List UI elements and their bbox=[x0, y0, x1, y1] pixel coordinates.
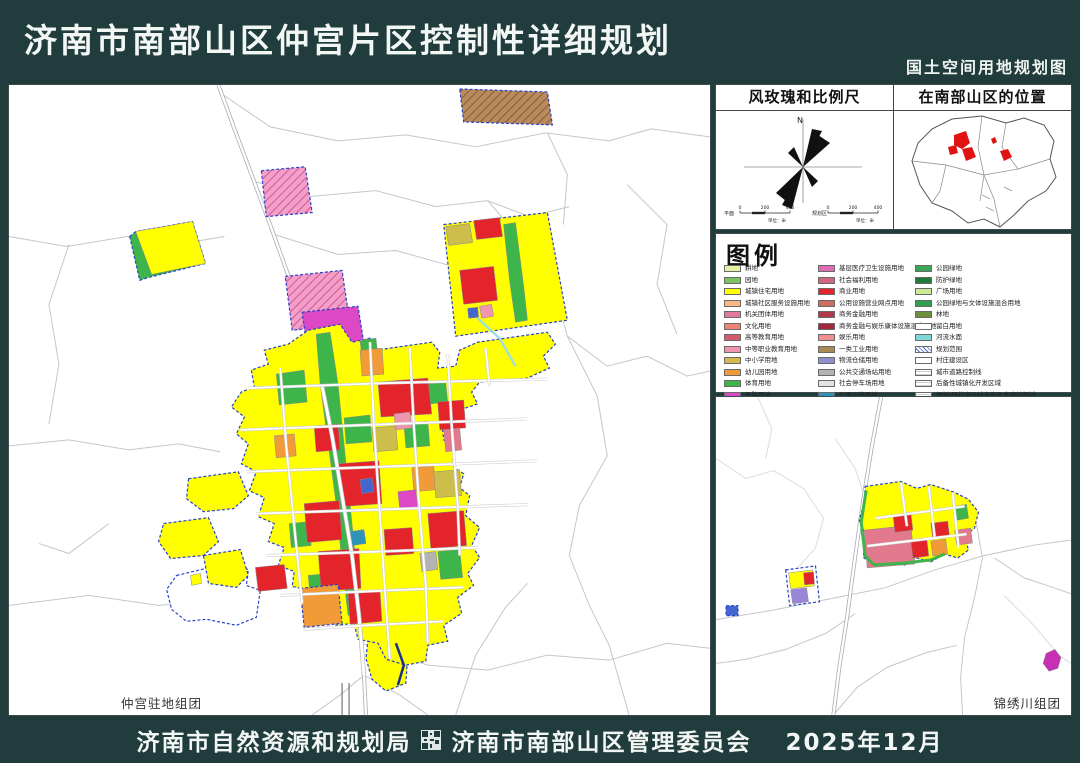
location-title: 在南部山区的位置 bbox=[894, 85, 1071, 111]
svg-text:0: 0 bbox=[739, 205, 742, 211]
legend-label: 城镇社区服务设施用地 bbox=[745, 299, 810, 308]
legend-swatch bbox=[724, 277, 741, 284]
svg-text:200: 200 bbox=[761, 205, 770, 211]
legend-label: 体育用地 bbox=[745, 379, 771, 388]
legend-swatch bbox=[724, 265, 741, 272]
legend-label: 商务金融用地 bbox=[839, 310, 878, 319]
legend-item: 城镇住宅用地 bbox=[724, 287, 784, 296]
footer-date: 2025年12月 bbox=[785, 723, 943, 757]
footer-agency-left: 济南市自然资源和规划局 bbox=[136, 723, 411, 757]
legend-swatch bbox=[724, 311, 741, 318]
legend-swatch bbox=[915, 311, 932, 318]
north-label: N bbox=[797, 116, 803, 125]
info-box: 风玫瑰和比例尺 N 平面0200400单位：米规划区0200400单位：米 在南… bbox=[715, 84, 1072, 230]
legend-swatch bbox=[818, 334, 835, 341]
legend-swatch bbox=[818, 288, 835, 295]
legend-swatch bbox=[915, 334, 932, 341]
legend-label: 基层医疗卫生设施用地 bbox=[839, 264, 904, 273]
sub-map-svg bbox=[716, 397, 1071, 715]
legend-label: 幼儿园用地 bbox=[745, 368, 778, 377]
legend-item: 商务金融用地 bbox=[818, 310, 878, 319]
legend-label: 文化用地 bbox=[745, 322, 771, 331]
legend-swatch bbox=[915, 323, 932, 330]
legend-swatch bbox=[915, 380, 932, 387]
legend-item: 社会福利用地 bbox=[818, 276, 878, 285]
legend-item: 防护绿地 bbox=[915, 276, 962, 285]
legend-swatch bbox=[818, 369, 835, 376]
legend-label: 河流水面 bbox=[936, 333, 962, 342]
legend-item: 耕地 bbox=[724, 264, 758, 273]
legend-label: 耕地 bbox=[745, 264, 758, 273]
legend-label: 中等职业教育用地 bbox=[745, 345, 797, 354]
legend-swatch bbox=[724, 357, 741, 364]
legend-item: 公用设施营业网点用地 bbox=[818, 299, 904, 308]
main-map-label: 仲宫驻地组团 bbox=[119, 693, 204, 712]
legend-item: 基层医疗卫生设施用地 bbox=[818, 264, 904, 273]
legend-item: 规划范围 bbox=[915, 345, 962, 354]
main-map-svg bbox=[9, 85, 710, 715]
legend-label: 广场用地 bbox=[936, 287, 962, 296]
legend-label: 城镇住宅用地 bbox=[745, 287, 784, 296]
footer-agency-right: 济南市南部山区管理委员会 bbox=[451, 723, 751, 757]
legend-item: 留白用地 bbox=[915, 322, 962, 331]
legend-label: 园地 bbox=[745, 276, 758, 285]
page-title: 济南市南部山区仲宫片区控制性详细规划 bbox=[24, 14, 672, 62]
legend-swatch bbox=[724, 323, 741, 330]
legend-item: 广场用地 bbox=[915, 287, 962, 296]
legend-swatch bbox=[818, 323, 835, 330]
legend-swatch bbox=[915, 369, 932, 376]
legend-item: 物流仓储用地 bbox=[818, 356, 878, 365]
legend-label: 公园绿地与文体设施混合用地 bbox=[936, 299, 1021, 308]
legend-label: 社会福利用地 bbox=[839, 276, 878, 285]
legend-item: 商业用地 bbox=[818, 287, 865, 296]
svg-text:单位：米: 单位：米 bbox=[856, 217, 874, 224]
legend-label: 公园绿地 bbox=[936, 264, 962, 273]
legend-label: 商业用地 bbox=[839, 287, 865, 296]
legend-item: 公共交通场站用地 bbox=[818, 368, 891, 377]
svg-text:平面: 平面 bbox=[724, 211, 734, 217]
legend-item: 城市道路控制线 bbox=[915, 368, 982, 377]
legend-swatch bbox=[724, 380, 741, 387]
legend-swatch bbox=[818, 380, 835, 387]
legend-swatch bbox=[724, 334, 741, 341]
windrose-cell: 风玫瑰和比例尺 N 平面0200400单位：米规划区0200400单位：米 bbox=[716, 85, 893, 229]
legend-label: 机关团体用地 bbox=[745, 310, 784, 319]
legend-swatch bbox=[818, 346, 835, 353]
svg-text:单位：米: 单位：米 bbox=[768, 217, 786, 224]
legend-swatch bbox=[915, 265, 932, 272]
legend-item: 中小学用地 bbox=[724, 356, 778, 365]
legend-swatch bbox=[915, 300, 932, 307]
legend-swatch bbox=[915, 277, 932, 284]
legend-swatch bbox=[724, 288, 741, 295]
legend-label: 社会停车场用地 bbox=[839, 379, 885, 388]
legend-label: 公共交通场站用地 bbox=[839, 368, 891, 377]
legend-swatch bbox=[915, 346, 932, 353]
legend-swatch bbox=[724, 346, 741, 353]
location-body bbox=[894, 111, 1071, 229]
legend-label: 林地 bbox=[936, 310, 949, 319]
svg-text:200: 200 bbox=[849, 205, 858, 211]
planning-map-poster: 济南市南部山区仲宫片区控制性详细规划 国土空间用地规划图 仲宫驻地组团 风玫瑰和… bbox=[0, 0, 1080, 763]
legend-swatch bbox=[915, 288, 932, 295]
legend-panel: 图例 耕地园地城镇住宅用地城镇社区服务设施用地机关团体用地文化用地高等教育用地中… bbox=[715, 233, 1072, 393]
legend-item: 村庄建设区 bbox=[915, 356, 969, 365]
legend-item: 城镇社区服务设施用地 bbox=[724, 299, 810, 308]
sub-map-label: 锦绣川组团 bbox=[991, 693, 1063, 712]
legend-label: 留白用地 bbox=[936, 322, 962, 331]
legend-swatch bbox=[818, 300, 835, 307]
legend-item: 幼儿园用地 bbox=[724, 368, 778, 377]
legend-label: 规划范围 bbox=[936, 345, 962, 354]
official-seal-icon bbox=[421, 730, 441, 750]
legend-item: 后备性城镇化开发区域 bbox=[915, 379, 1001, 388]
header-band: 济南市南部山区仲宫片区控制性详细规划 国土空间用地规划图 bbox=[0, 0, 1080, 82]
legend-item: 园地 bbox=[724, 276, 758, 285]
legend-item: 娱乐用地 bbox=[818, 333, 865, 342]
legend-swatch bbox=[818, 311, 835, 318]
svg-text:规划区: 规划区 bbox=[812, 210, 827, 217]
legend-item: 文化用地 bbox=[724, 322, 771, 331]
main-map-panel: 仲宫驻地组团 bbox=[8, 84, 711, 716]
legend-item: 社会停车场用地 bbox=[818, 379, 885, 388]
legend-label: 城市道路控制线 bbox=[936, 368, 982, 377]
footer-band: 济南市自然资源和规划局 济南市南部山区管理委员会 2025年12月 bbox=[0, 717, 1080, 763]
legend-label: 一类工业用地 bbox=[839, 345, 878, 354]
legend-item: 机关团体用地 bbox=[724, 310, 784, 319]
legend-item: 高等教育用地 bbox=[724, 333, 784, 342]
location-map-svg bbox=[894, 111, 1071, 229]
legend-item: 公园绿地与文体设施混合用地 bbox=[915, 299, 1021, 308]
legend-label: 村庄建设区 bbox=[936, 356, 969, 365]
sub-map-panel: 锦绣川组团 bbox=[715, 396, 1072, 716]
windrose-icon: N 平面0200400单位：米规划区0200400单位：米 bbox=[716, 111, 893, 229]
legend-item: 一类工业用地 bbox=[818, 345, 878, 354]
location-cell: 在南部山区的位置 bbox=[893, 85, 1071, 229]
scale-bars: 平面0200400单位：米规划区0200400单位：米 bbox=[724, 205, 882, 224]
windrose-title: 风玫瑰和比例尺 bbox=[716, 85, 893, 111]
legend-label: 中小学用地 bbox=[745, 356, 778, 365]
svg-text:400: 400 bbox=[786, 205, 795, 211]
legend-swatch bbox=[724, 300, 741, 307]
svg-text:0: 0 bbox=[827, 205, 830, 211]
legend-item: 林地 bbox=[915, 310, 949, 319]
legend-label: 物流仓储用地 bbox=[839, 356, 878, 365]
legend-swatch bbox=[724, 369, 741, 376]
legend-item: 体育用地 bbox=[724, 379, 771, 388]
legend-item: 中等职业教育用地 bbox=[724, 345, 797, 354]
map-sheet-subtitle: 国土空间用地规划图 bbox=[906, 54, 1068, 78]
svg-text:400: 400 bbox=[874, 205, 883, 211]
legend-swatch bbox=[915, 357, 932, 364]
legend-swatch bbox=[818, 357, 835, 364]
legend-item: 公园绿地 bbox=[915, 264, 962, 273]
legend-item: 河流水面 bbox=[915, 333, 962, 342]
legend-swatch bbox=[818, 265, 835, 272]
legend-swatch bbox=[818, 277, 835, 284]
legend-label: 娱乐用地 bbox=[839, 333, 865, 342]
legend-label: 后备性城镇化开发区域 bbox=[936, 379, 1001, 388]
legend-label: 公用设施营业网点用地 bbox=[839, 299, 904, 308]
legend-label: 防护绿地 bbox=[936, 276, 962, 285]
windrose-body: N 平面0200400单位：米规划区0200400单位：米 bbox=[716, 111, 893, 229]
legend-label: 高等教育用地 bbox=[745, 333, 784, 342]
